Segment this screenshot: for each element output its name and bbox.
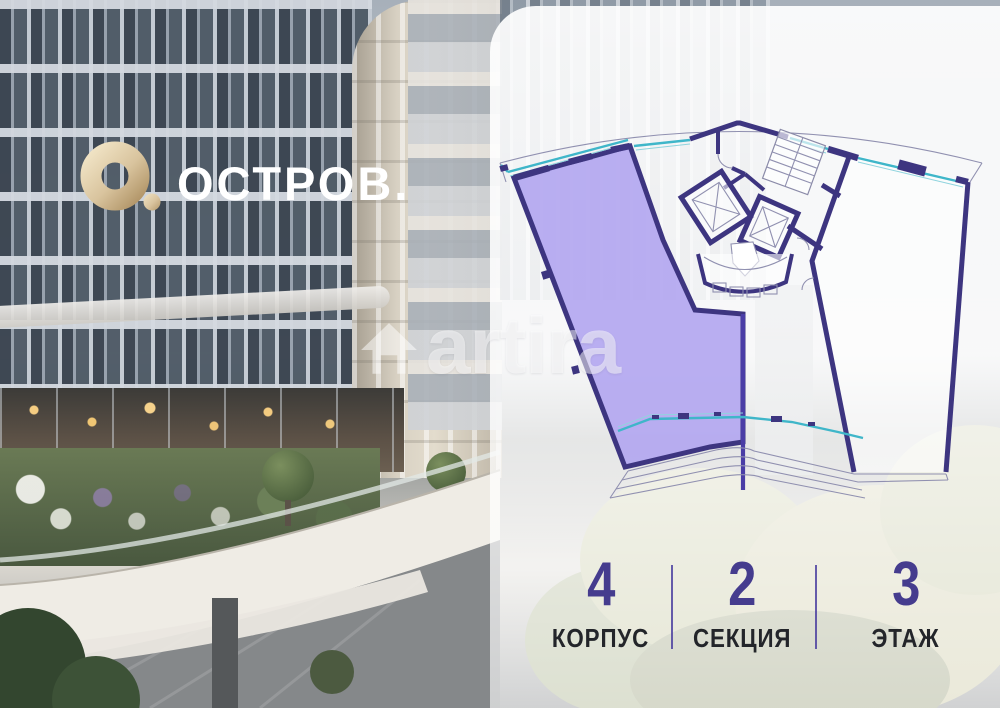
info-item-floor: 3 ЭТАЖ bbox=[826, 554, 986, 654]
floor-number: 3 bbox=[892, 554, 920, 616]
section-number: 2 bbox=[728, 554, 756, 616]
logo-text: ОСТРОВ. bbox=[177, 156, 410, 211]
logo-ring-icon bbox=[78, 138, 168, 220]
info-divider bbox=[815, 565, 817, 649]
service-bay bbox=[698, 254, 792, 292]
foliage bbox=[310, 650, 354, 694]
floor-plan bbox=[492, 86, 997, 511]
elevator-icon bbox=[681, 171, 751, 242]
neighbor-unit bbox=[812, 149, 968, 472]
ostrov-logo bbox=[78, 138, 168, 220]
staircase-icon bbox=[763, 129, 826, 194]
building-label: КОРПУС bbox=[552, 623, 649, 654]
section-label: СЕКЦИЯ bbox=[693, 623, 791, 654]
info-item-building: 4 КОРПУС bbox=[521, 554, 681, 654]
building-number: 4 bbox=[587, 554, 615, 616]
listing-card: ОСТРОВ. bbox=[0, 0, 1000, 708]
info-item-section: 2 СЕКЦИЯ bbox=[662, 554, 822, 654]
pillar bbox=[212, 598, 238, 708]
floor-label: ЭТАЖ bbox=[872, 623, 940, 654]
floorplan-panel: 4 КОРПУС 2 СЕКЦИЯ 3 ЭТАЖ bbox=[490, 6, 1000, 708]
